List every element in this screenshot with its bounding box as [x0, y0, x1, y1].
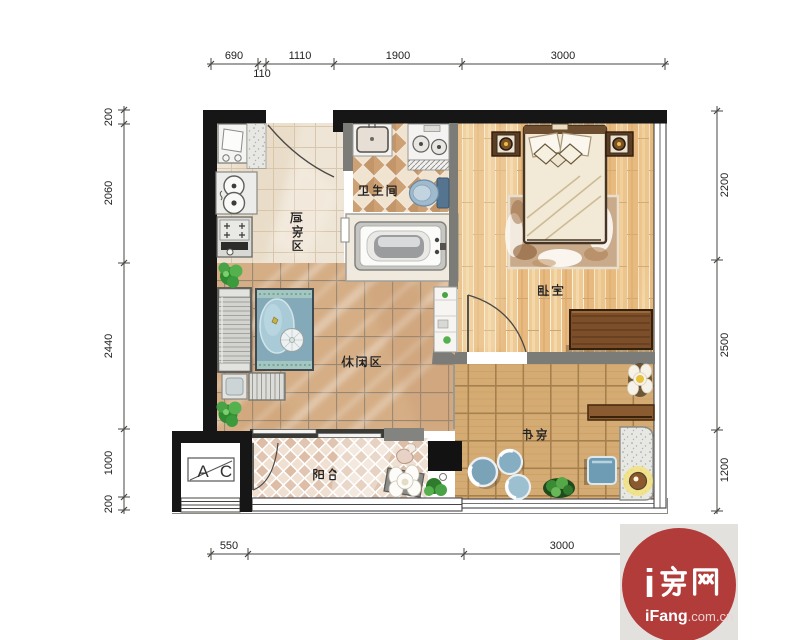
svg-text:iFang.com.cn: iFang.com.cn — [645, 608, 733, 625]
svg-text:2500: 2500 — [719, 333, 731, 357]
svg-text:2200: 2200 — [719, 173, 731, 197]
svg-text:3000: 3000 — [550, 540, 574, 552]
svg-text:1110: 1110 — [289, 50, 312, 62]
svg-text:110: 110 — [253, 68, 271, 80]
svg-text:1900: 1900 — [386, 50, 410, 62]
svg-text:1000: 1000 — [103, 451, 115, 475]
svg-text:i: i — [644, 562, 655, 606]
svg-text:1200: 1200 — [719, 458, 731, 482]
svg-text:550: 550 — [220, 540, 238, 552]
svg-text:200: 200 — [103, 108, 115, 126]
svg-text:200: 200 — [103, 495, 115, 513]
svg-text:A: A — [197, 462, 209, 481]
svg-text:2440: 2440 — [103, 334, 115, 358]
svg-text:3000: 3000 — [551, 50, 575, 62]
svg-text:690: 690 — [225, 50, 243, 62]
svg-text:2060: 2060 — [103, 181, 115, 205]
svg-text:C: C — [220, 462, 232, 481]
